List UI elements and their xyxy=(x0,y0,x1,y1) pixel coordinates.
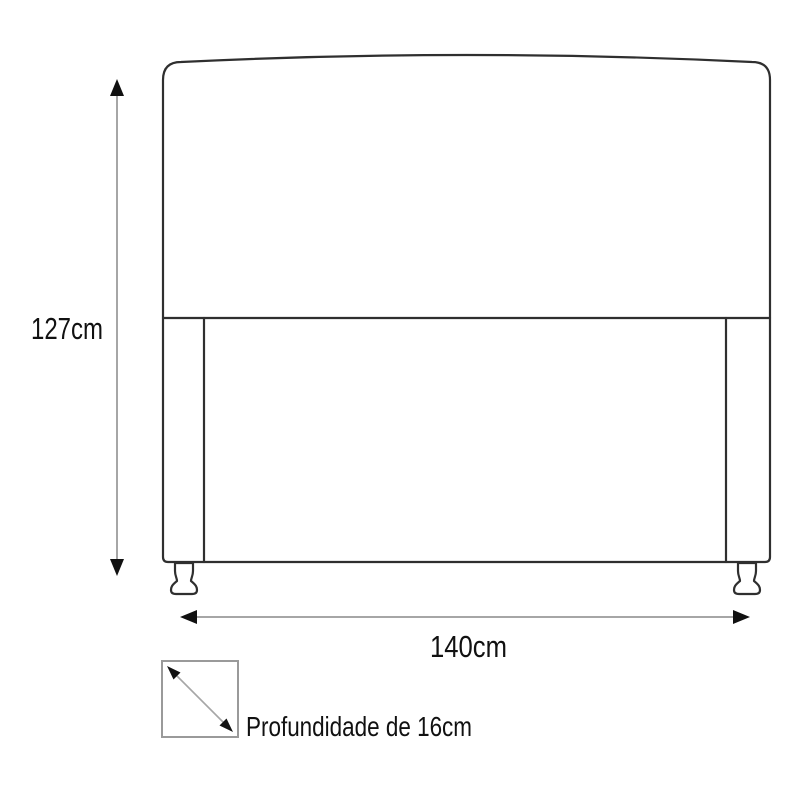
diagram-canvas: 127cm 140cm Profundidade de 16cm xyxy=(0,0,800,800)
width-dimension: 140cm xyxy=(180,610,750,664)
arrow-up-icon xyxy=(110,79,124,96)
height-dimension-label: 127cm xyxy=(31,311,103,346)
height-dimension: 127cm xyxy=(31,79,124,576)
arrow-right-icon xyxy=(733,610,750,624)
headboard-drawing xyxy=(163,55,770,594)
depth-diagonal-line xyxy=(176,675,224,723)
arrow-left-icon xyxy=(180,610,197,624)
headboard-outline xyxy=(163,55,770,562)
depth-label: Profundidade de 16cm xyxy=(246,711,472,742)
depth-indicator: Profundidade de 16cm xyxy=(162,661,472,742)
right-foot xyxy=(734,563,760,594)
width-dimension-label: 140cm xyxy=(430,629,507,664)
left-foot xyxy=(171,563,197,594)
headboard-dimension-diagram: 127cm 140cm Profundidade de 16cm xyxy=(0,0,800,800)
arrow-down-icon xyxy=(110,559,124,576)
